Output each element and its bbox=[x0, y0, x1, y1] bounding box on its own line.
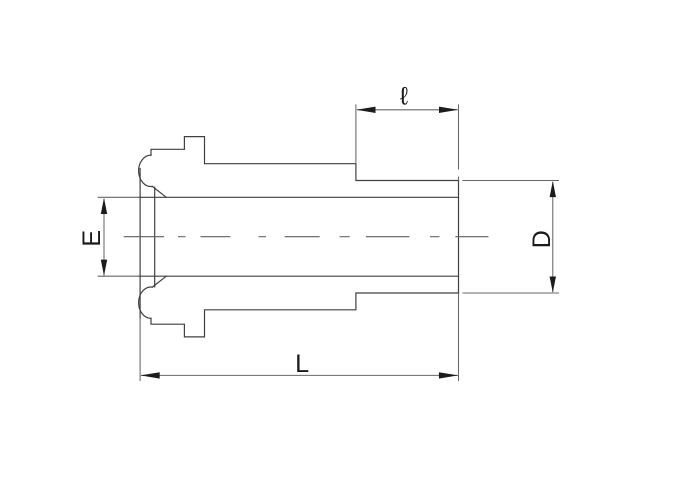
svg-text:D: D bbox=[528, 230, 556, 248]
svg-text:L: L bbox=[295, 350, 309, 378]
svg-text:ℓ: ℓ bbox=[400, 82, 409, 110]
svg-text:E: E bbox=[78, 230, 106, 247]
